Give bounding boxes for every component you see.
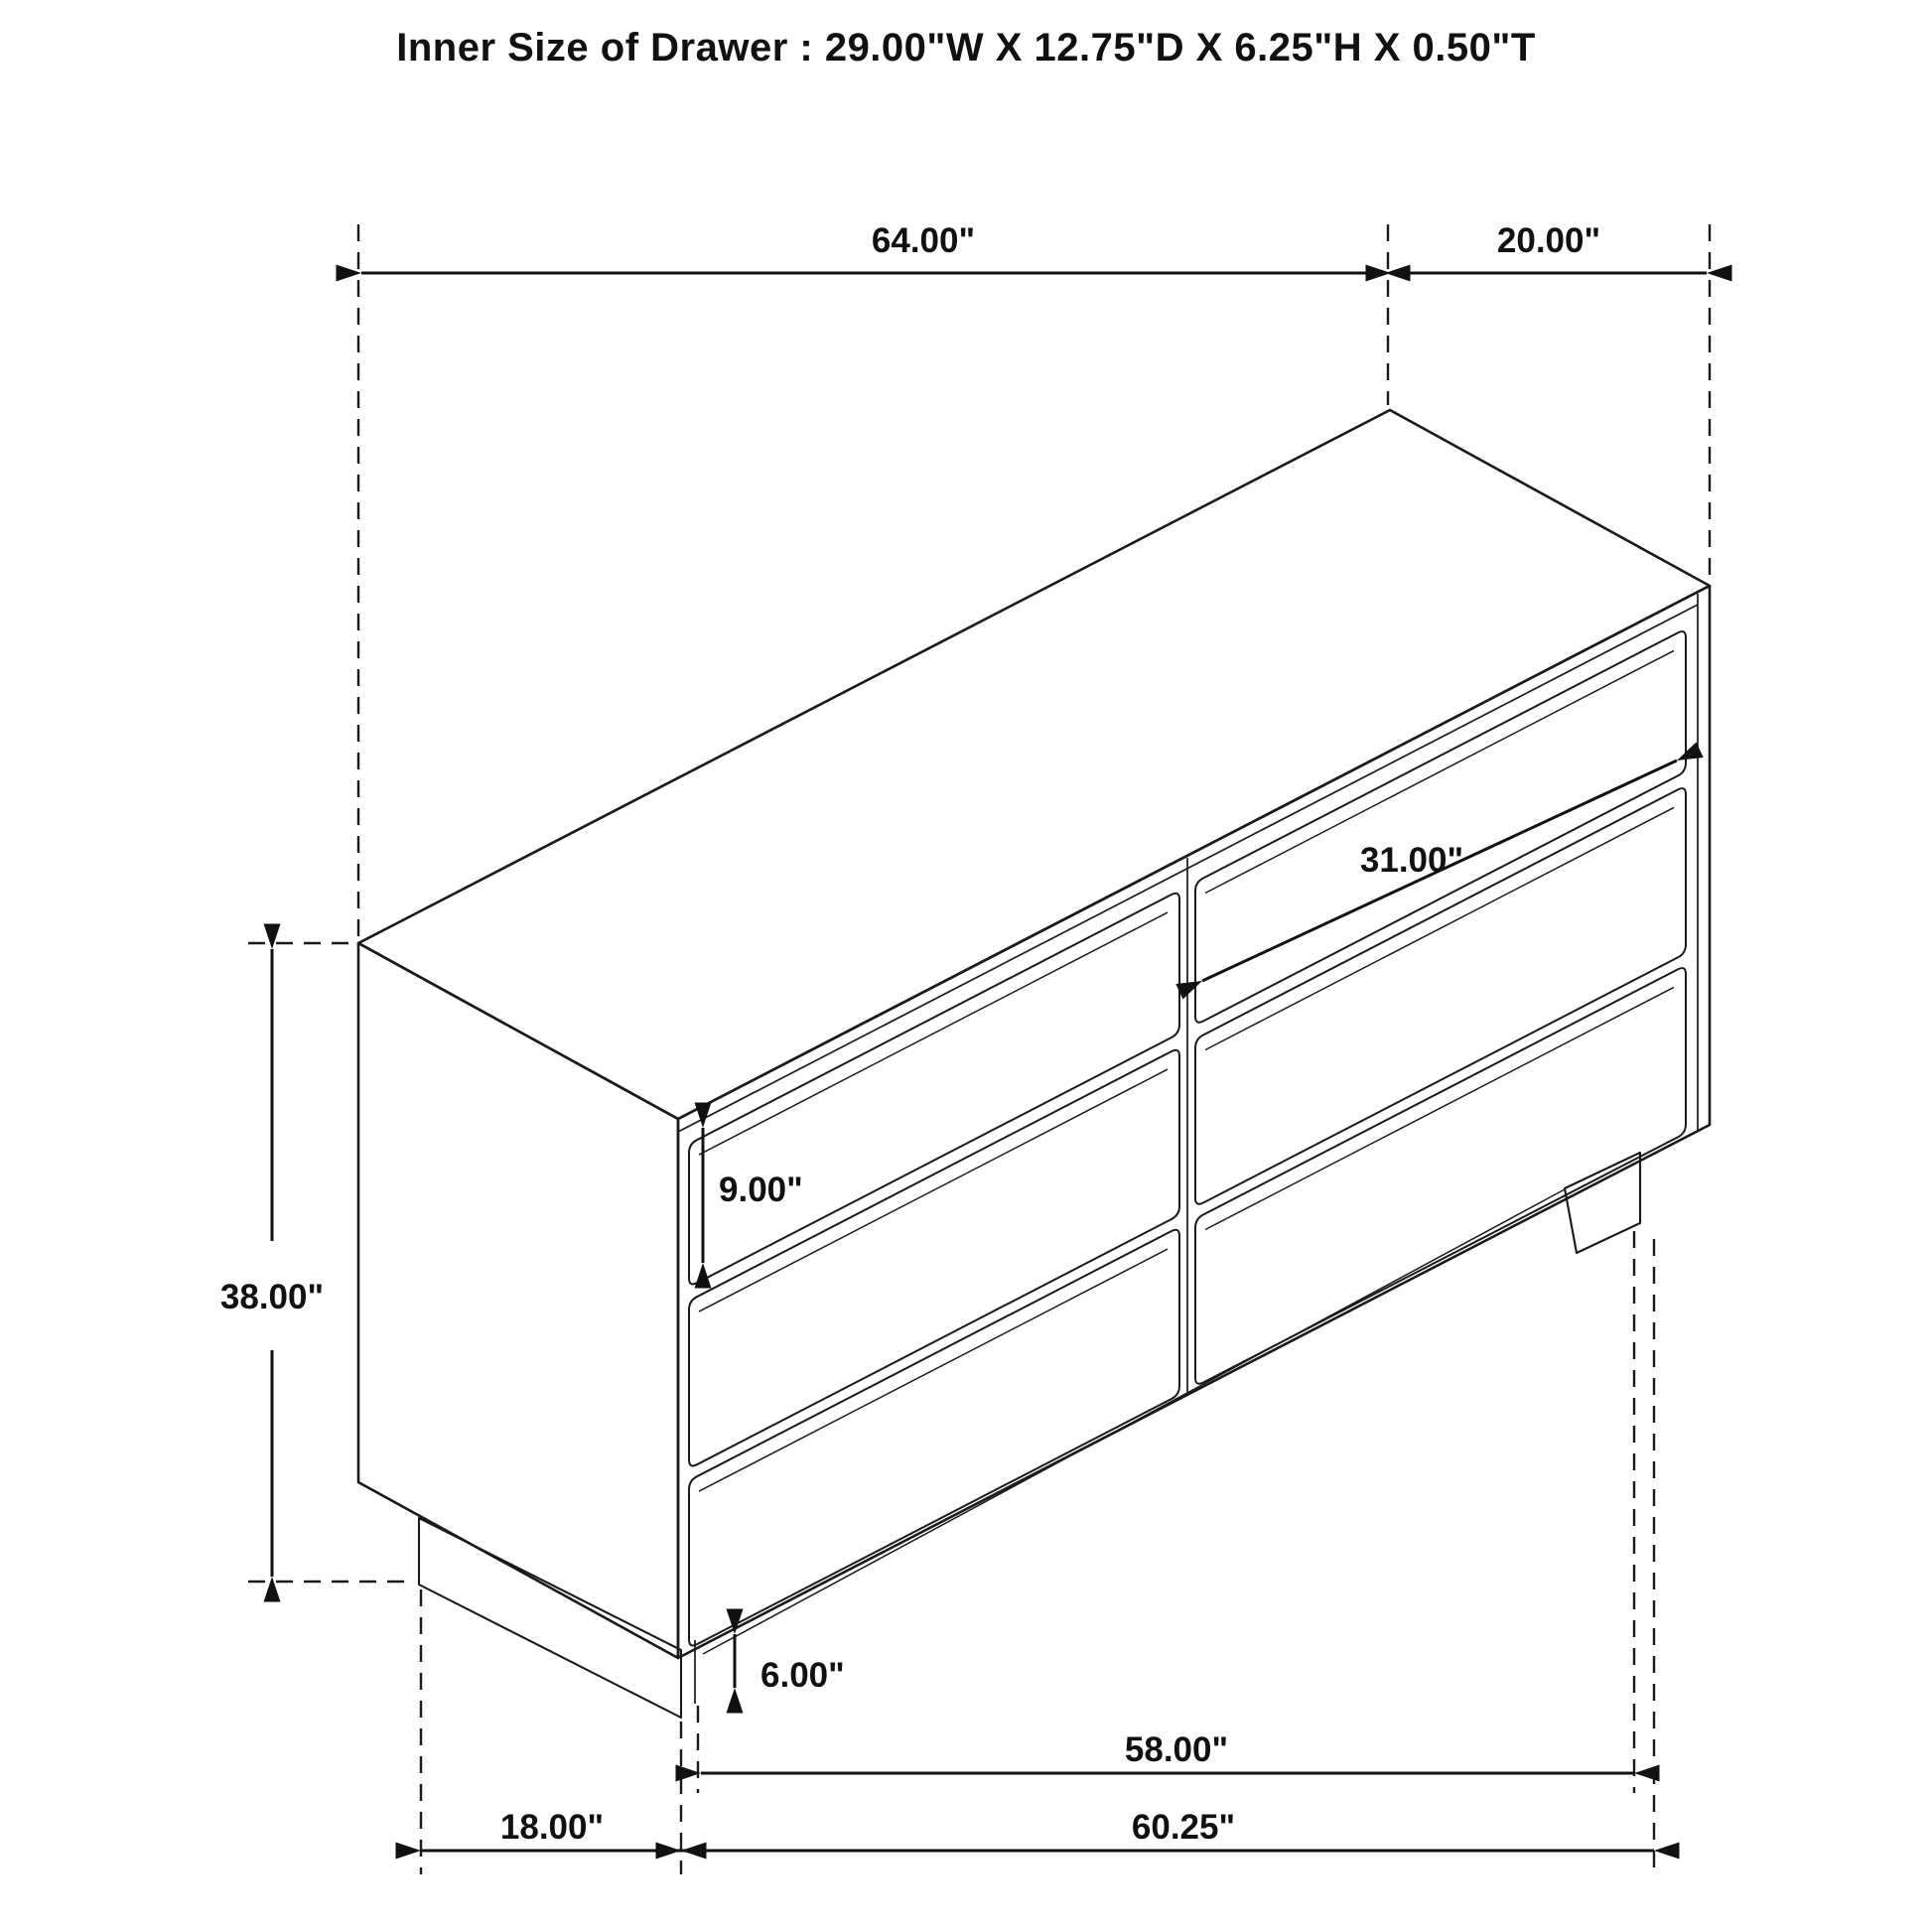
drawer-top-groove-line: [699, 912, 1168, 1155]
drawer-front: [689, 1050, 1179, 1466]
dim-label-overall-width: 64.00": [872, 221, 975, 260]
dim-label-drawer-width: 31.00": [1360, 841, 1463, 880]
drawer-top-groove-line: [1205, 987, 1674, 1229]
dim-label-bottom-depth: 18.00": [500, 1808, 604, 1847]
dimension-arrows: [272, 273, 1707, 1851]
base-plinth: [419, 1153, 1640, 1718]
diagram-canvas: Inner Size of Drawer : 29.00"W X 12.75"D…: [0, 0, 1932, 1932]
dashed-extension-lines: [248, 224, 1710, 1874]
dim-label-bottom-width: 60.25": [1132, 1808, 1235, 1847]
dim-label-overall-height: 38.00": [220, 1278, 324, 1316]
drawer-top-groove-line: [699, 1249, 1168, 1491]
dim-label-base-height: 6.00": [760, 1656, 845, 1695]
dresser-dimension-drawing: 64.00" 20.00" 38.00" 31.00" 9.00" 6.00" …: [0, 0, 1932, 1932]
dimension-labels: 64.00" 20.00" 38.00" 31.00" 9.00" 6.00" …: [220, 221, 1600, 1847]
dim-label-drawer-height: 9.00": [719, 1171, 803, 1209]
dim-label-base-width: 58.00": [1125, 1730, 1228, 1769]
dim-label-overall-depth: 20.00": [1497, 221, 1600, 260]
